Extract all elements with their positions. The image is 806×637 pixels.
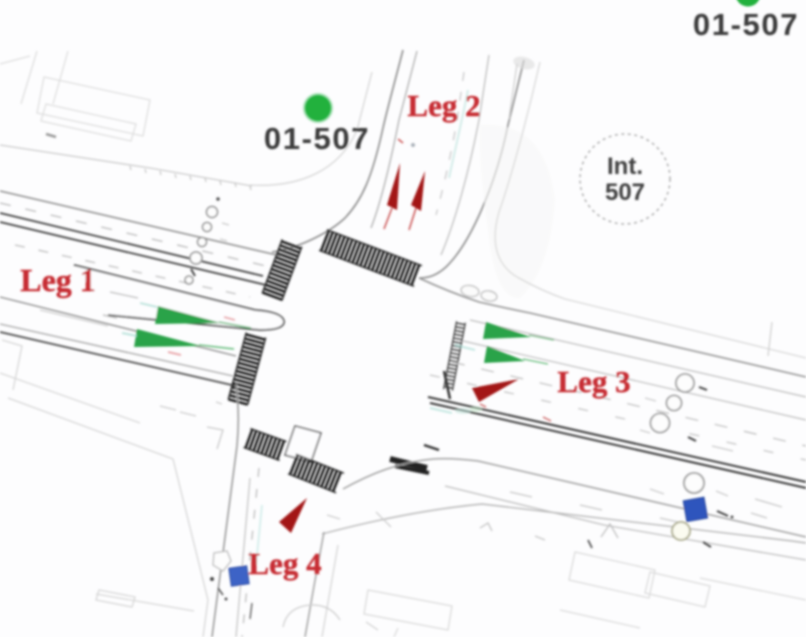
svg-text:Leg 1: Leg 1 [20, 262, 96, 298]
svg-text:Leg 2: Leg 2 [407, 88, 480, 123]
svg-text:Int.: Int. [607, 153, 643, 180]
svg-text:507: 507 [605, 179, 645, 206]
svg-text:Leg 4: Leg 4 [248, 546, 321, 581]
svg-text:01-507: 01-507 [693, 7, 799, 42]
svg-text:Leg 3: Leg 3 [557, 364, 630, 399]
svg-text:01-507: 01-507 [264, 121, 370, 156]
